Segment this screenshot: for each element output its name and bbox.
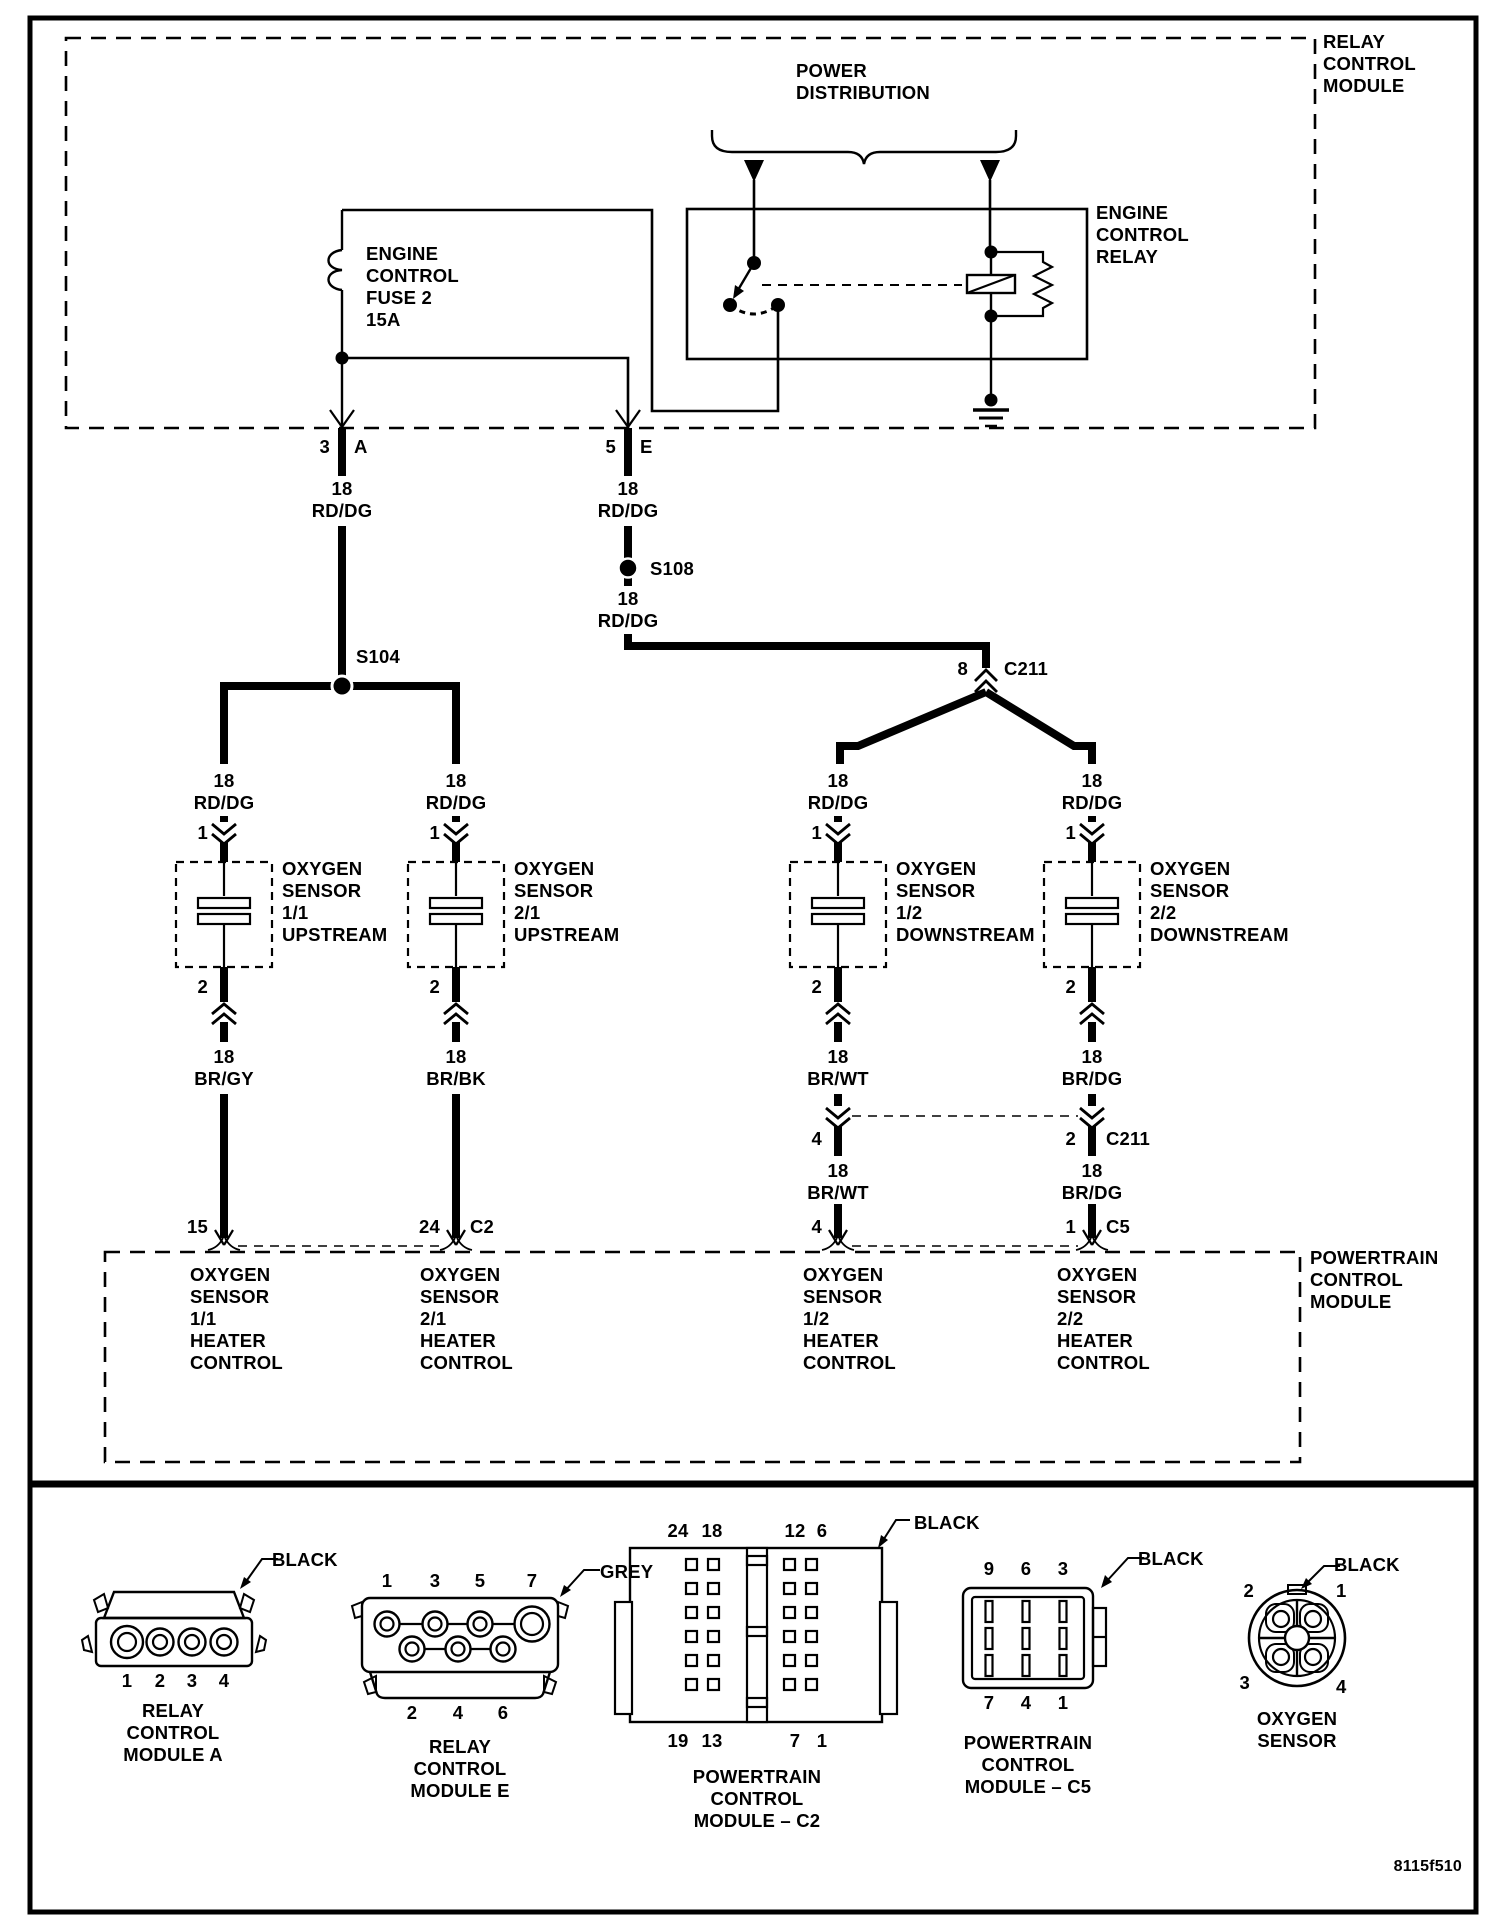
connector-a-color: BLACK — [272, 1549, 338, 1571]
connector-o2-caption: OXYGEN SENSOR — [1257, 1708, 1337, 1752]
wire-label-rd-dg: 18 RD/DG — [312, 478, 373, 522]
schematic-linework — [0, 0, 1504, 1930]
sensor-pin-1: 1 — [160, 822, 208, 844]
pcm-pin-24-label: 24 — [392, 1216, 440, 1238]
column-oxygen-sensor-2-1 — [408, 816, 504, 1250]
pin-3-label: 3 — [282, 436, 330, 458]
connector-o2-pin: 3 — [1202, 1672, 1250, 1694]
wire-label-rd-dg: 18 RD/DG — [598, 588, 659, 632]
sensor-pin-2: 2 — [160, 976, 208, 998]
connector-c2-pin: 12 — [785, 1520, 806, 1542]
connector-c5-pin: 1 — [1058, 1692, 1069, 1714]
cavity-e-label: E — [640, 436, 653, 458]
connector-c5-color: BLACK — [1138, 1548, 1204, 1570]
fuse-output-junction — [336, 352, 629, 429]
s104-splice-bar — [224, 676, 456, 764]
connector-e-pin: 7 — [527, 1570, 538, 1592]
pcm-c5-label: C5 — [1106, 1216, 1130, 1238]
pcm-function-1-1: OXYGEN SENSOR 1/1 HEATER CONTROL — [190, 1264, 283, 1374]
pcm-c2-label: C2 — [470, 1216, 494, 1238]
connector-c5-pin: 4 — [1021, 1692, 1032, 1714]
engine-control-fuse-label: ENGINE CONTROL FUSE 2 15A — [366, 243, 459, 331]
sensor-pin-1: 1 — [774, 822, 822, 844]
connector-c5-pin: 9 — [984, 1558, 995, 1580]
engine-control-relay-label: ENGINE CONTROL RELAY — [1096, 202, 1189, 268]
connector-c2-pin: 24 — [668, 1520, 689, 1542]
connector-a-pin: 2 — [155, 1670, 166, 1692]
connector-c5-pin: 6 — [1021, 1558, 1032, 1580]
relay-control-module-a-connector — [82, 1559, 278, 1666]
connector-o2-pin: 4 — [1336, 1676, 1347, 1698]
connector-c5-caption: POWERTRAIN CONTROL MODULE – C5 — [964, 1732, 1092, 1798]
wire-label-br-dg: 18 BR/DG — [1062, 1046, 1123, 1090]
connector-c2-pin: 6 — [817, 1520, 828, 1542]
relay-module-title: RELAY CONTROL MODULE — [1323, 31, 1416, 97]
sensor-pin-2: 2 — [392, 976, 440, 998]
splice-s108-label: S108 — [650, 558, 694, 580]
connector-c2-pin: 18 — [702, 1520, 723, 1542]
connector-o2-pin: 2 — [1206, 1580, 1254, 1602]
connector-pairing-dashes — [238, 1116, 1078, 1246]
wire-label-br-wt: 18 BR/WT — [807, 1160, 869, 1204]
sensor-pin-2: 2 — [1028, 976, 1076, 998]
connector-c2-pin: 7 — [790, 1730, 801, 1752]
connector-e-pin: 4 — [453, 1702, 464, 1724]
oxygen-sensor-connector — [1249, 1566, 1345, 1686]
pcm-title: POWERTRAIN CONTROL MODULE — [1310, 1247, 1438, 1313]
wire-label-rd-dg: 18 RD/DG — [1062, 770, 1123, 814]
connector-c5-pin: 3 — [1058, 1558, 1069, 1580]
connector-e-caption: RELAY CONTROL MODULE E — [410, 1736, 509, 1802]
connector-c2-pin: 1 — [817, 1730, 828, 1752]
sensor-pin-2: 2 — [774, 976, 822, 998]
wiring-diagram-page: RELAY CONTROL MODULE POWER DISTRIBUTION … — [0, 0, 1504, 1930]
c211-pin-2-label: 2 — [1028, 1128, 1076, 1150]
wire-label-br-dg: 18 BR/DG — [1062, 1160, 1123, 1204]
sensor-2-1-label: OXYGEN SENSOR 2/1 UPSTREAM — [514, 858, 619, 946]
splice-s104-label: S104 — [356, 646, 400, 668]
pcm-function-1-2: OXYGEN SENSOR 1/2 HEATER CONTROL — [803, 1264, 896, 1374]
sensor-1-2-label: OXYGEN SENSOR 1/2 DOWNSTREAM — [896, 858, 1035, 946]
pcm-pin-1-label: 1 — [1028, 1216, 1076, 1238]
sensor-1-1-label: OXYGEN SENSOR 1/1 UPSTREAM — [282, 858, 387, 946]
s108-splice — [619, 559, 638, 578]
connector-a-pin: 4 — [219, 1670, 230, 1692]
c211-pin-8-label: 8 — [920, 658, 968, 680]
fuse-symbol — [329, 210, 343, 428]
connector-c2-pin: 13 — [702, 1730, 723, 1752]
column-oxygen-sensor-1-1 — [176, 816, 272, 1250]
c211-pin-4-label: 4 — [774, 1128, 822, 1150]
pin-5-label: 5 — [568, 436, 616, 458]
pcm-function-2-2: OXYGEN SENSOR 2/2 HEATER CONTROL — [1057, 1264, 1150, 1374]
cavity-a-label: A — [354, 436, 368, 458]
connector-e-pin: 6 — [498, 1702, 509, 1724]
pcm-pin-4-label: 4 — [774, 1216, 822, 1238]
wire-label-br-gy: 18 BR/GY — [194, 1046, 254, 1090]
powertrain-control-module-c2-connector — [615, 1520, 910, 1722]
pcm-function-2-1: OXYGEN SENSOR 2/1 HEATER CONTROL — [420, 1264, 513, 1374]
connector-e-pin: 3 — [430, 1570, 441, 1592]
sensor-pin-1: 1 — [392, 822, 440, 844]
power-distribution-label: POWER DISTRIBUTION — [796, 60, 930, 104]
wire-label-rd-dg: 18 RD/DG — [426, 770, 487, 814]
connector-e-color: GREY — [600, 1561, 653, 1583]
wire-label-rd-dg: 18 RD/DG — [598, 478, 659, 522]
document-id: 8115f510 — [1394, 1856, 1462, 1878]
wire-label-br-wt: 18 BR/WT — [807, 1046, 869, 1090]
wire-label-br-bk: 18 BR/BK — [426, 1046, 486, 1090]
pcm-pin-15-label: 15 — [160, 1216, 208, 1238]
connector-a-pin: 3 — [187, 1670, 198, 1692]
c211-name-label: C211 — [1106, 1128, 1150, 1150]
rcm-pin-connectors — [330, 410, 640, 427]
connector-a-pin: 1 — [122, 1670, 133, 1692]
connector-c2-color: BLACK — [914, 1512, 980, 1534]
c211-name-label: C211 — [1004, 658, 1048, 680]
connector-e-pin: 1 — [382, 1570, 393, 1592]
power-distribution-brace — [712, 130, 1016, 164]
connector-c2-pin: 19 — [668, 1730, 689, 1752]
sensor-2-2-label: OXYGEN SENSOR 2/2 DOWNSTREAM — [1150, 858, 1289, 946]
connector-e-pin: 5 — [475, 1570, 486, 1592]
wire-label-rd-dg: 18 RD/DG — [194, 770, 255, 814]
engine-control-relay-symbol — [687, 209, 1087, 426]
connector-a-caption: RELAY CONTROL MODULE A — [123, 1700, 223, 1766]
ground-icon — [973, 410, 1009, 426]
connector-e-pin: 2 — [407, 1702, 418, 1724]
sensor-pin-1: 1 — [1028, 822, 1076, 844]
connector-o2-pin: 1 — [1336, 1580, 1347, 1602]
connector-c2-caption: POWERTRAIN CONTROL MODULE – C2 — [693, 1766, 821, 1832]
wire-label-rd-dg: 18 RD/DG — [808, 770, 869, 814]
connector-c5-pin: 7 — [984, 1692, 995, 1714]
connector-o2-color: BLACK — [1334, 1554, 1400, 1576]
